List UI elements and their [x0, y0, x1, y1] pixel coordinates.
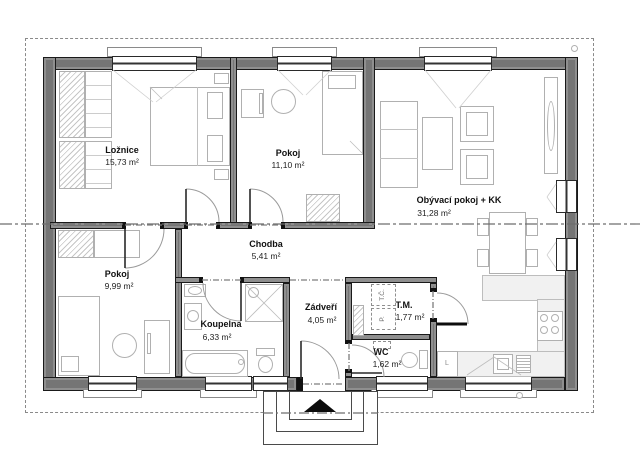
wall-zadveri-tm-upper [345, 283, 352, 343]
wall-pokoj-obyvaci [363, 57, 375, 229]
monitor [259, 93, 263, 114]
sofa-cushion-line [380, 158, 418, 159]
nightstand [214, 169, 229, 180]
door-post [297, 377, 303, 391]
room-label-pokoj1: Pokoj [276, 149, 301, 158]
pillow [207, 92, 223, 119]
monitor [147, 333, 151, 354]
bed-blanket-line [197, 87, 198, 166]
desk-chair [112, 333, 137, 358]
wall-koupelna-top-seg1 [175, 277, 202, 283]
wall-pokoj2-koupelna [175, 229, 182, 377]
window-koupelna-1 [205, 376, 252, 391]
door-post [345, 340, 352, 344]
door-post [281, 222, 285, 229]
vent-pipe [571, 45, 578, 52]
dining-chair [477, 218, 489, 236]
wardrobe [59, 141, 85, 189]
stove-burner [540, 314, 548, 322]
door-post [248, 222, 252, 229]
room-area-chodba: 5,41 m² [252, 252, 281, 261]
toilet-bowl [401, 352, 418, 368]
wall-tm-right-lower [430, 321, 437, 377]
wall-exterior-right [565, 57, 578, 391]
stove-burner [540, 326, 548, 334]
door-post [199, 277, 203, 283]
door-post [216, 222, 220, 229]
room-label-obyvaci: Obývací pokoj + KK [417, 196, 502, 205]
room-label-tm: T.M. [396, 301, 413, 310]
pillow [328, 75, 356, 89]
toilet-bowl [258, 356, 273, 373]
stove-burner [551, 314, 559, 322]
dining-table [489, 212, 526, 274]
wardrobe-shelves [94, 230, 140, 258]
kitchen-sink-basin [497, 358, 509, 370]
room-area-koupelna: 6,33 m² [203, 333, 232, 342]
entrance-arrow-icon [304, 399, 336, 412]
armchair-seat [466, 112, 488, 136]
wall-middle-seg2 [162, 222, 186, 229]
sofa-cushion-line [380, 129, 418, 130]
wardrobe [59, 71, 85, 138]
tm-shelving [353, 305, 364, 336]
nightstand [214, 73, 229, 84]
toilet-tank [419, 350, 428, 369]
room-area-tm: 1,77 m² [396, 313, 425, 322]
window-koupelna-2 [253, 376, 288, 391]
wardrobe-shelves [85, 71, 112, 138]
window-obyvaci-top [424, 56, 492, 71]
door-post [240, 277, 244, 283]
rug [306, 194, 340, 222]
window-obyvaci-right-2 [556, 238, 577, 271]
room-label-pokoj2: Pokoj [105, 270, 130, 279]
coffee-table [422, 117, 453, 170]
bathtub-inner [185, 353, 245, 374]
wall-tm-top [345, 277, 437, 283]
shower-head [248, 287, 259, 298]
wall-middle-seg4 [283, 222, 375, 229]
window-kuchyn [465, 376, 532, 391]
wall-loznice-pokoj [230, 57, 237, 224]
sofa [380, 101, 418, 188]
room-label-loznice: Ložnice [105, 146, 139, 155]
fridge-label: L [445, 360, 449, 367]
kitchen-counter-peninsula [482, 275, 565, 301]
window-wc [376, 376, 428, 391]
dining-chair [526, 218, 538, 236]
room-label-wc: WC [374, 348, 389, 357]
heat-pump-label: T.Č. [380, 289, 387, 301]
window-pokoj1 [277, 56, 332, 71]
wall-middle-seg3 [218, 222, 250, 229]
wall-koupelna-zadveri [283, 283, 290, 377]
room-area-pokoj1: 11,10 m² [272, 161, 305, 170]
window-pokoj2 [88, 376, 137, 391]
washing-machine-drum [187, 310, 199, 322]
room-area-obyvaci: 31,28 m² [417, 209, 451, 218]
dining-chair [477, 249, 489, 267]
tv-screen [547, 101, 555, 151]
room-area-loznice: 15,73 m² [105, 158, 139, 167]
door-post [430, 318, 437, 322]
stove-burner [551, 326, 559, 334]
vent-pipe [516, 392, 523, 399]
door-post [122, 222, 126, 229]
desk-chair [271, 89, 296, 114]
bathtub-faucet [238, 359, 244, 365]
dining-chair [526, 249, 538, 267]
dish-drainer [516, 355, 531, 373]
toilet-tank [256, 348, 275, 356]
door-post [160, 222, 164, 229]
room-area-wc: 1,62 m² [373, 360, 402, 369]
wall-middle-seg1 [50, 222, 125, 229]
door-post [345, 369, 352, 373]
room-label-zadveri: Zádveří [305, 303, 337, 312]
washbasin-bowl [188, 286, 202, 295]
room-area-zadveri: 4,05 m² [308, 316, 337, 325]
room-label-koupelna: Koupelna [200, 320, 241, 329]
pillow [61, 356, 79, 372]
pump-label: P. [380, 316, 387, 321]
armchair-seat [466, 155, 488, 179]
window-loznice [112, 56, 197, 71]
wardrobe [58, 230, 94, 258]
pillow [207, 135, 223, 162]
room-area-pokoj2: 9,99 m² [105, 282, 134, 291]
floor-plan: Ložnice 15,73 m² Pokoj 11,10 m² Obývací … [0, 0, 640, 473]
room-label-chodba: Chodba [249, 240, 283, 249]
door-post [184, 222, 188, 229]
window-obyvaci-right-1 [556, 180, 577, 213]
door-post [430, 288, 437, 292]
